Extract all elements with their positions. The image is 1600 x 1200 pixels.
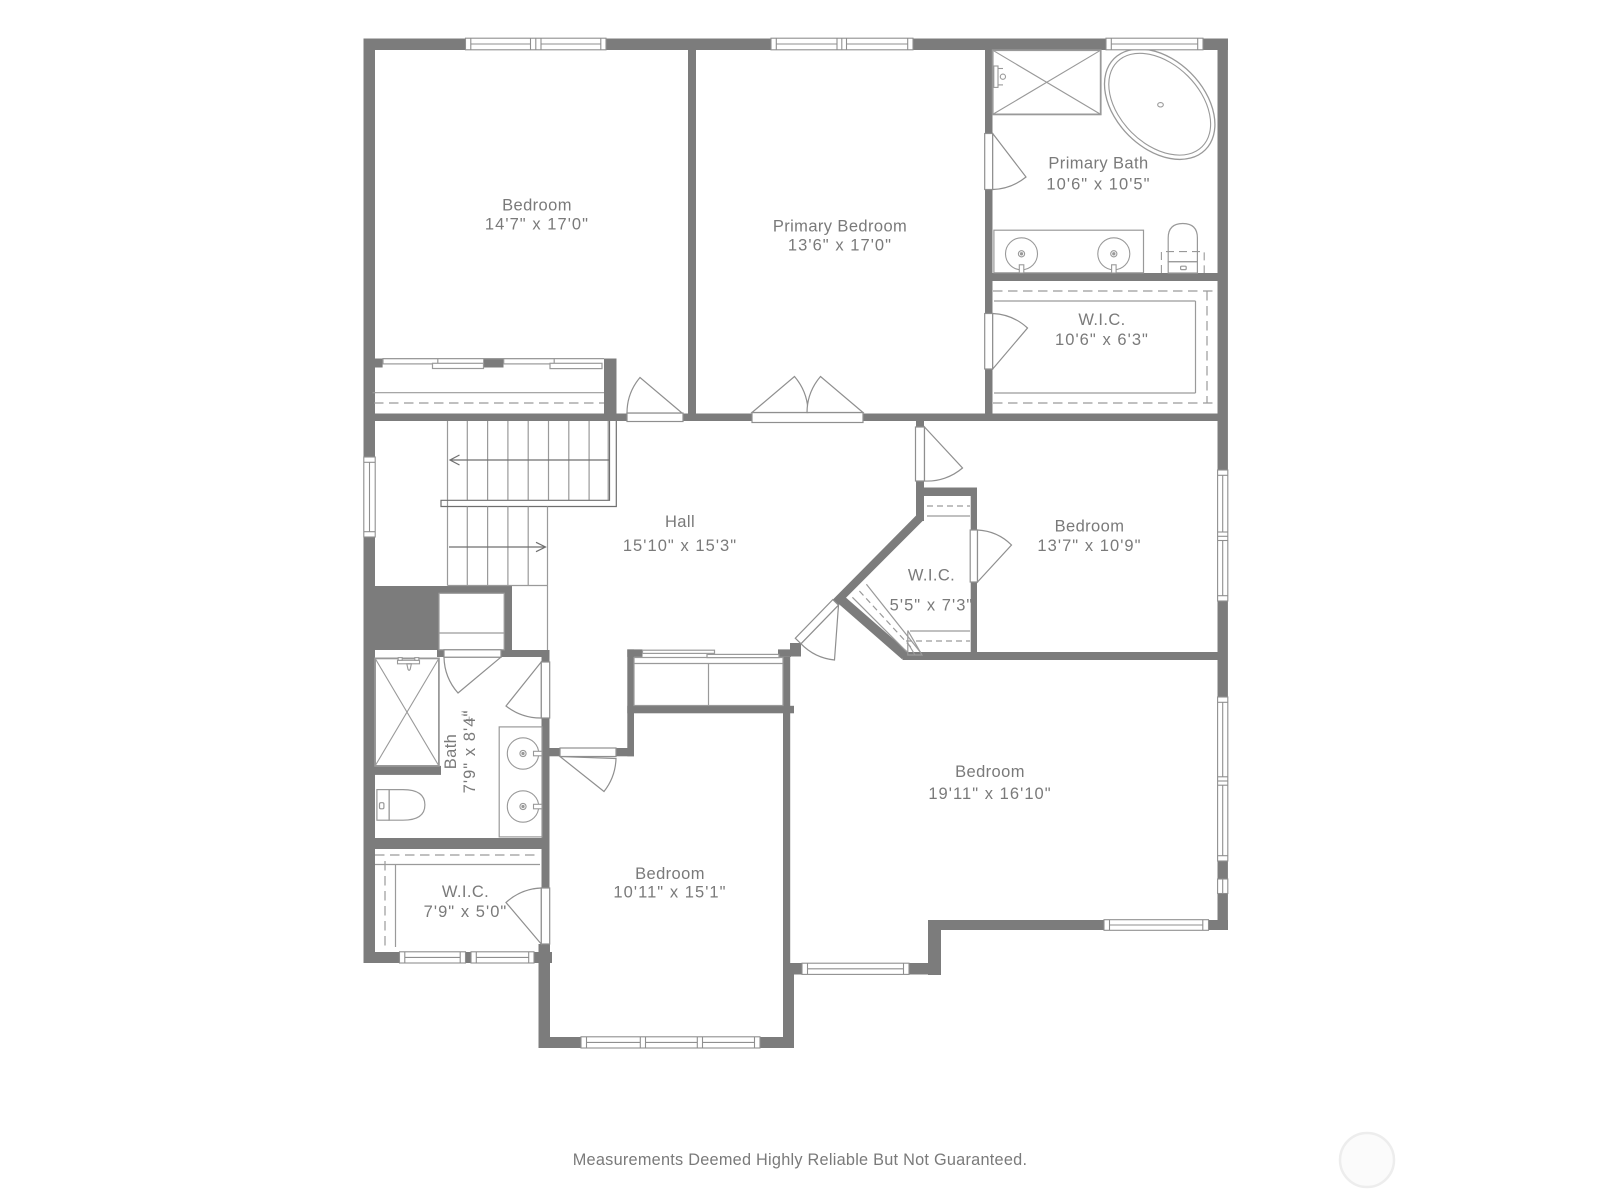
svg-text:10'6" x 6'3": 10'6" x 6'3" bbox=[1055, 331, 1149, 349]
svg-text:10'11" x 15'1": 10'11" x 15'1" bbox=[613, 884, 726, 902]
svg-text:7'9" x 5'0": 7'9" x 5'0" bbox=[424, 903, 508, 921]
svg-text:W.I.C.: W.I.C. bbox=[442, 883, 489, 901]
svg-text:W.I.C.: W.I.C. bbox=[1078, 311, 1125, 329]
svg-text:Bedroom: Bedroom bbox=[502, 197, 572, 215]
svg-text:13'6" x 17'0": 13'6" x 17'0" bbox=[788, 237, 892, 255]
svg-text:14'7" x 17'0": 14'7" x 17'0" bbox=[485, 216, 589, 234]
svg-text:15'10" x 15'3": 15'10" x 15'3" bbox=[623, 537, 737, 555]
svg-text:19'11" x 16'10": 19'11" x 16'10" bbox=[928, 785, 1051, 803]
svg-text:10'6" x 10'5": 10'6" x 10'5" bbox=[1046, 176, 1150, 194]
svg-text:5'5" x 7'3": 5'5" x 7'3" bbox=[890, 597, 974, 615]
svg-text:Measurements Deemed Highly Rel: Measurements Deemed Highly Reliable But … bbox=[573, 1151, 1027, 1169]
svg-text:13'7" x 10'9": 13'7" x 10'9" bbox=[1037, 537, 1141, 555]
svg-text:7'9" x 8'4": 7'9" x 8'4" bbox=[461, 710, 479, 794]
svg-text:Bedroom: Bedroom bbox=[955, 763, 1025, 781]
svg-text:W.I.C.: W.I.C. bbox=[908, 567, 955, 585]
svg-text:Bedroom: Bedroom bbox=[1055, 518, 1125, 536]
svg-text:Hall: Hall bbox=[665, 513, 695, 531]
svg-text:Bedroom: Bedroom bbox=[635, 865, 705, 883]
svg-text:Primary Bath: Primary Bath bbox=[1048, 155, 1148, 173]
svg-text:Primary Bedroom: Primary Bedroom bbox=[773, 218, 907, 236]
svg-text:Bath: Bath bbox=[442, 734, 460, 770]
